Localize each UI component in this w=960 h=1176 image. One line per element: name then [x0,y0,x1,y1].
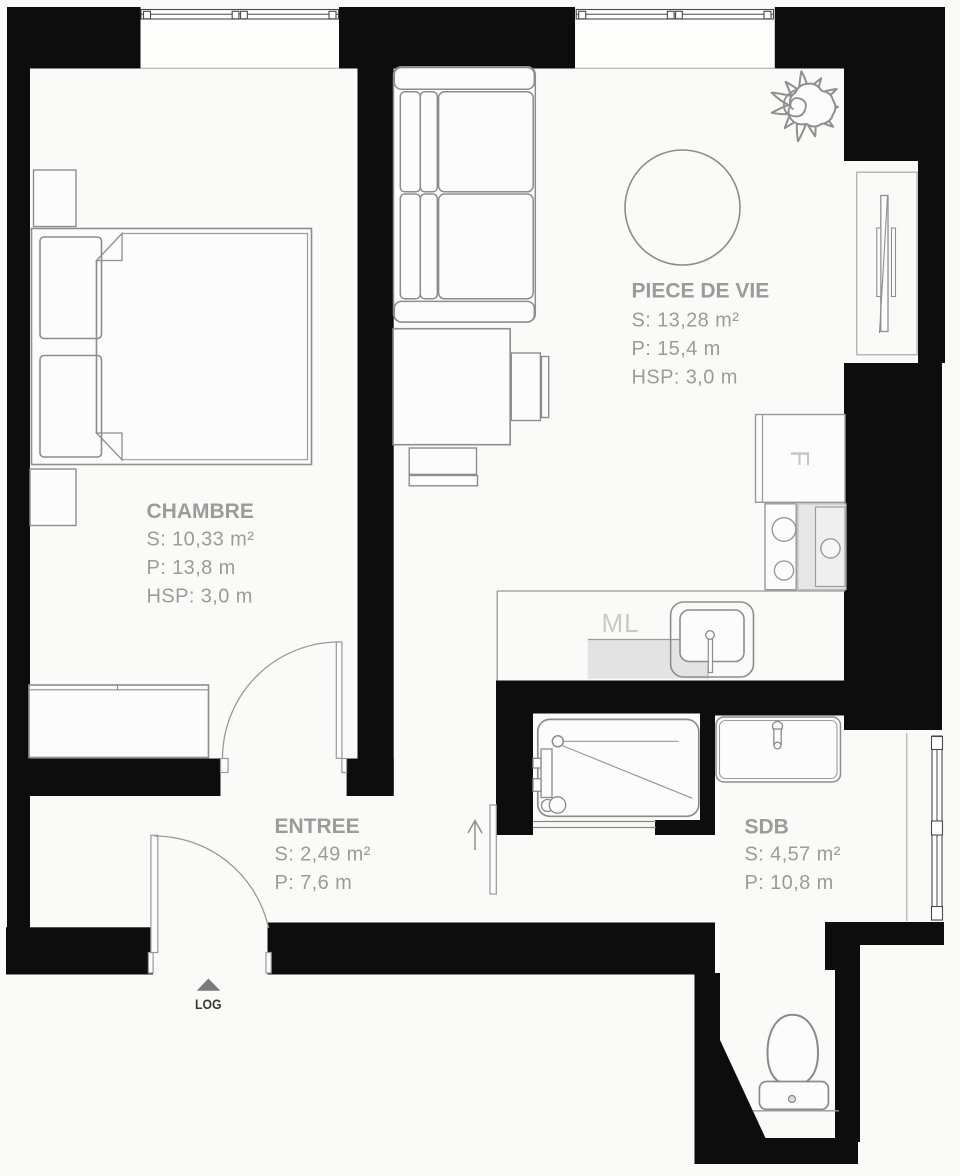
svg-text:ML: ML [602,608,640,638]
svg-text:PIECE DE VIE: PIECE DE VIE [632,280,770,303]
svg-text:LOG: LOG [195,997,222,1013]
svg-text:CHAMBRE: CHAMBRE [147,500,254,523]
svg-text:P: 10,8 m: P: 10,8 m [745,872,834,894]
svg-text:HSP: 3,0 m: HSP: 3,0 m [147,586,253,608]
svg-text:P: 13,8 m: P: 13,8 m [147,557,236,579]
svg-text:ENTREE: ENTREE [275,815,360,838]
svg-text:S: 10,33 m²: S: 10,33 m² [147,529,255,551]
svg-text:P: 7,6 m: P: 7,6 m [275,872,353,894]
svg-text:S: 13,28 m²: S: 13,28 m² [632,310,740,332]
svg-text:F: F [785,450,815,466]
svg-text:HSP: 3,0 m: HSP: 3,0 m [632,367,738,389]
svg-text:S: 4,57 m²: S: 4,57 m² [745,844,841,866]
svg-text:S: 2,49 m²: S: 2,49 m² [275,844,371,866]
svg-text:SDB: SDB [745,816,789,839]
svg-text:P: 15,4 m: P: 15,4 m [632,338,721,360]
